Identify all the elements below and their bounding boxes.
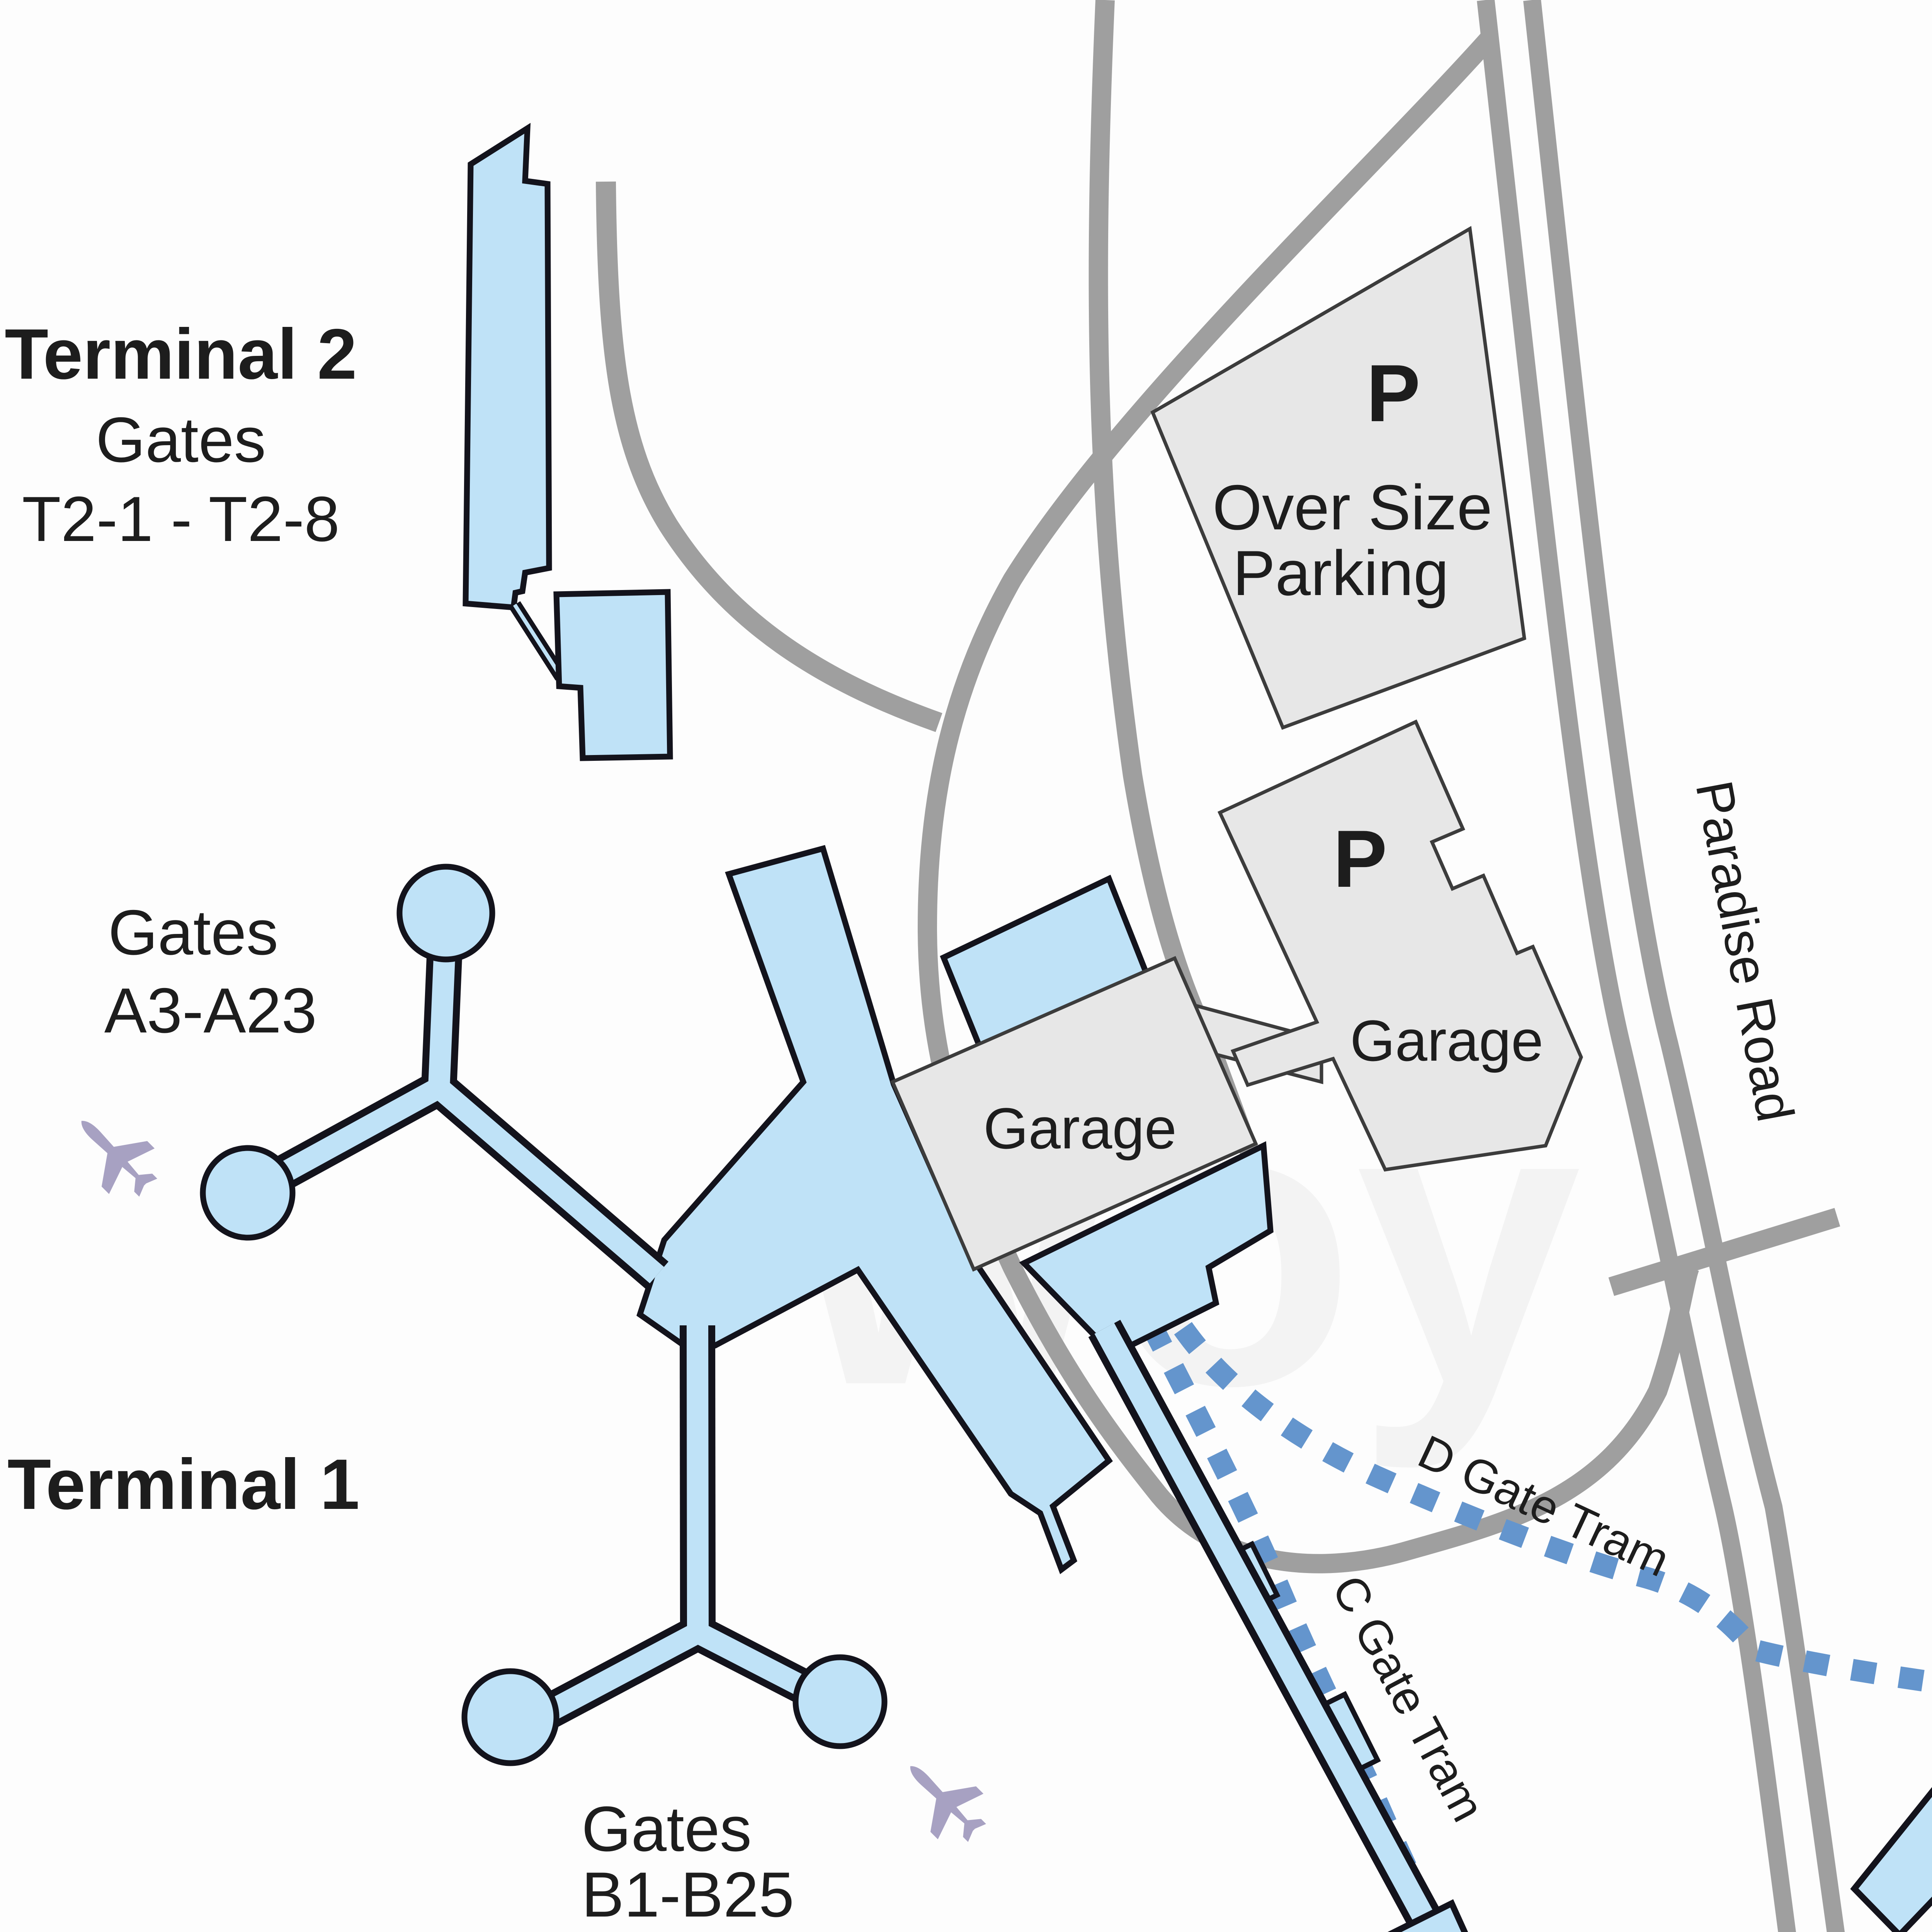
svg-text:Terminal 1: Terminal 1	[7, 1445, 360, 1524]
svg-text:Gates: Gates	[96, 404, 266, 475]
svg-text:P: P	[1366, 348, 1420, 439]
svg-text:Garage: Garage	[983, 1096, 1177, 1161]
svg-text:Gates: Gates	[108, 897, 278, 968]
svg-text:P: P	[1333, 813, 1387, 904]
svg-text:Terminal 2: Terminal 2	[5, 315, 357, 394]
svg-text:Over Size: Over Size	[1213, 472, 1492, 543]
svg-text:Garage: Garage	[1350, 1008, 1543, 1073]
svg-text:B1-B25: B1-B25	[582, 1859, 794, 1930]
svg-text:T2-1 - T2-8: T2-1 - T2-8	[22, 483, 340, 554]
svg-text:Gates: Gates	[582, 1793, 752, 1864]
svg-text:Parking: Parking	[1233, 537, 1449, 609]
svg-text:A3-A23: A3-A23	[104, 975, 317, 1046]
